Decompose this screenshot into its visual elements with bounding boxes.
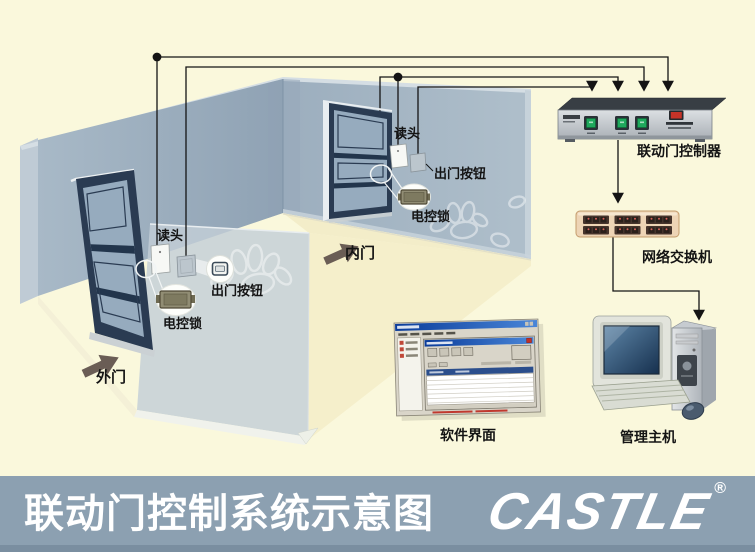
- exit-button: [177, 255, 196, 277]
- system-diagram: 读头 出门按钮 电控锁 外门 读头 出门按钮 电控锁 内门 联动门控制器 网络交…: [0, 0, 755, 476]
- title-banner: 联动门控制系统示意图 CASTLE®: [0, 476, 755, 552]
- switch-port-group: [615, 226, 641, 235]
- page-title: 联动门控制系统示意图: [24, 481, 434, 539]
- outer-reader-label: 读头: [157, 228, 183, 243]
- card-reader: [151, 244, 170, 274]
- controller-label: 联动门控制器: [637, 143, 722, 159]
- exit-button: [410, 153, 426, 172]
- inner-lock-label: 电控锁: [411, 209, 450, 224]
- switch-port-group: [615, 216, 641, 225]
- inner-door: [323, 101, 392, 223]
- close-button: [526, 338, 531, 343]
- controller-model-print: [666, 122, 693, 125]
- schematic-page: 读头 出门按钮 电控锁 外门 读头 出门按钮 电控锁 内门 联动门控制器 网络交…: [0, 0, 755, 552]
- inner-reader-label: 读头: [394, 126, 420, 141]
- inner-door-label: 内门: [345, 244, 375, 262]
- brand-logo: CASTLE®: [489, 482, 721, 542]
- outer-exit-button-label: 出门按钮: [211, 283, 263, 298]
- brand-logo-text: CASTLE: [483, 482, 716, 542]
- junction-dot: [394, 73, 403, 82]
- switch-port-group: [583, 216, 609, 225]
- network-switch-label: 网络交换机: [642, 249, 712, 265]
- network-switch-device: [576, 211, 679, 237]
- management-host-label: 管理主机: [620, 429, 676, 445]
- banner-bottom-strip: [0, 545, 755, 552]
- controller-brand-print: [563, 115, 580, 119]
- tower-side: [702, 329, 716, 410]
- software-ui-label: 软件界面: [440, 427, 496, 443]
- inner-exit-button-label: 出门按钮: [434, 166, 486, 181]
- card-reader: [390, 144, 408, 168]
- registered-mark: ®: [714, 480, 726, 498]
- outer-lock-label: 电控锁: [163, 316, 202, 331]
- door-controller-device: [558, 98, 726, 142]
- switch-port-group: [646, 226, 672, 235]
- software-ui-window: [394, 319, 546, 421]
- junction-dot: [153, 53, 162, 62]
- switch-port-group: [646, 216, 672, 225]
- outer-door-label: 外门: [95, 368, 126, 386]
- switch-port-group: [583, 226, 609, 235]
